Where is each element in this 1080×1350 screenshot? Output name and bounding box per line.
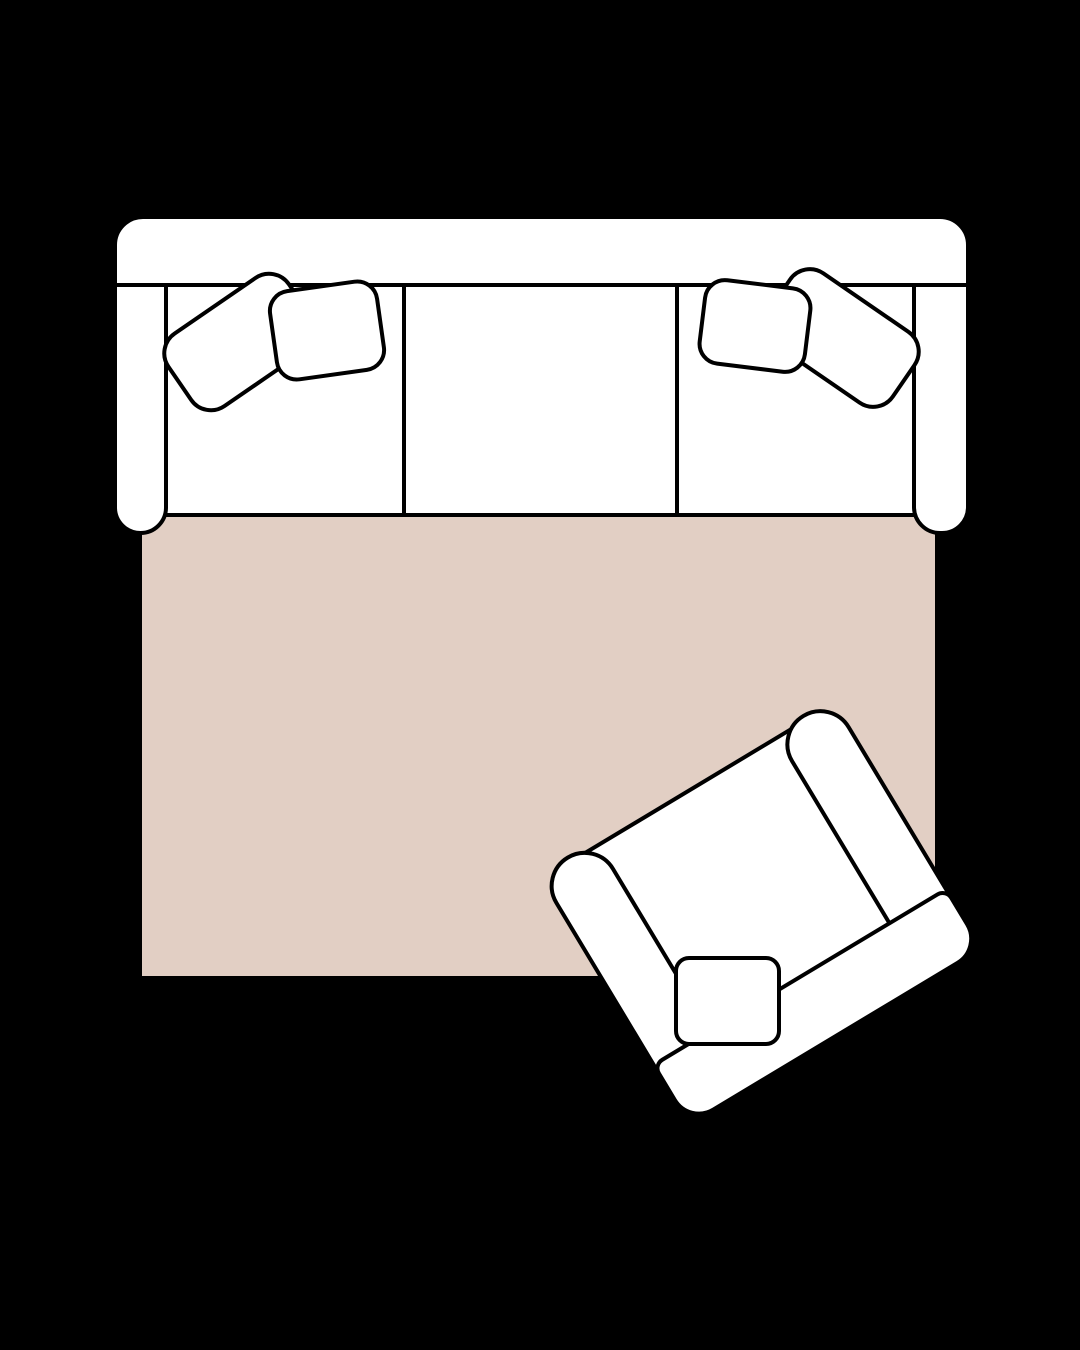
sofa-pillow-left-front [265, 277, 389, 385]
sofa-cushion-divider-right [675, 287, 679, 513]
sofa-armrest-right [912, 283, 970, 535]
sofa-cushion-divider-left [402, 287, 406, 513]
sofa-armrest-left [113, 283, 168, 535]
armchair-pillow [674, 956, 781, 1046]
sofa-pillow-right-front [695, 276, 815, 377]
floorplan-canvas [0, 0, 1080, 1350]
